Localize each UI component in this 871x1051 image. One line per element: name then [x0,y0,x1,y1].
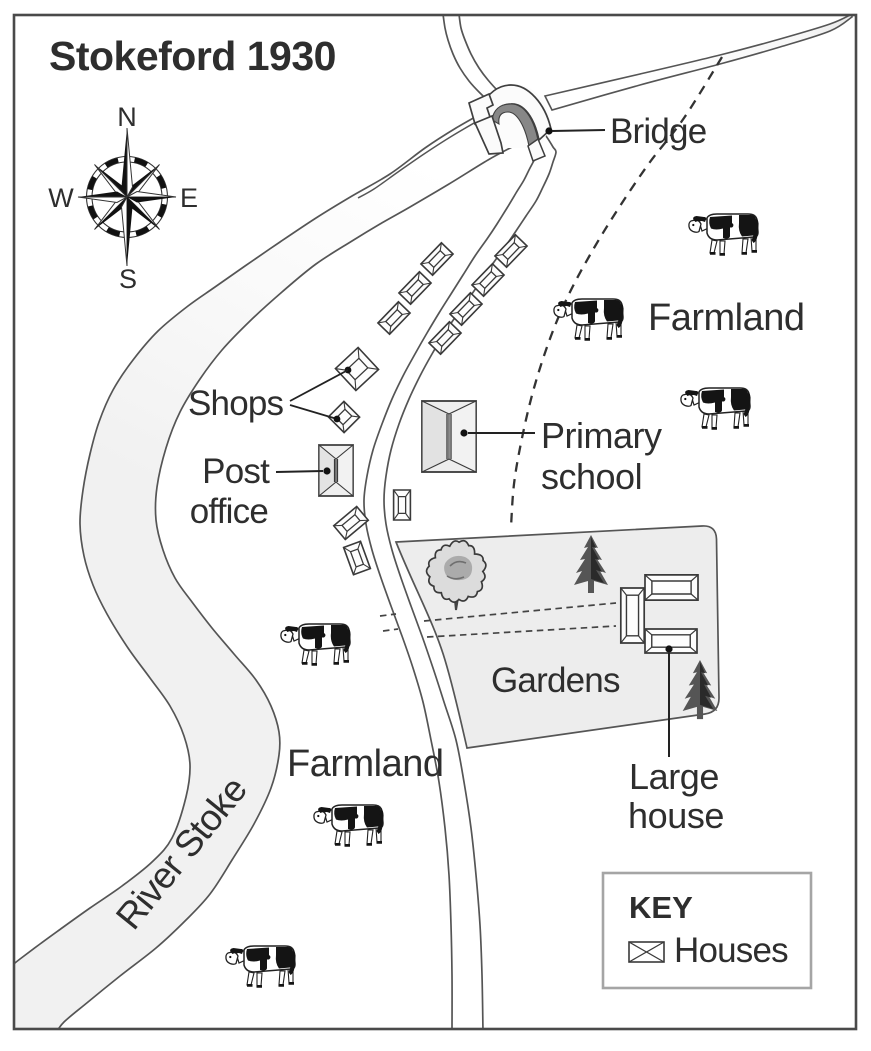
svg-text:N: N [117,102,137,132]
svg-text:Farmland: Farmland [648,297,805,339]
svg-text:Primary: Primary [541,415,662,456]
svg-text:S: S [119,264,137,294]
svg-text:school: school [541,456,642,497]
svg-text:KEY: KEY [629,890,693,925]
svg-text:W: W [48,183,74,213]
svg-text:Farmland: Farmland [287,743,444,785]
svg-text:Bridge: Bridge [610,112,706,151]
svg-text:Post: Post [202,452,270,491]
svg-text:Stokeford 1930: Stokeford 1930 [49,33,336,79]
svg-text:Houses: Houses [674,931,788,970]
svg-text:Gardens: Gardens [491,661,620,700]
svg-text:Shops: Shops [188,384,284,423]
svg-text:Large: Large [629,756,719,797]
svg-text:E: E [180,183,198,213]
svg-text:house: house [628,795,724,836]
svg-text:office: office [190,492,268,531]
